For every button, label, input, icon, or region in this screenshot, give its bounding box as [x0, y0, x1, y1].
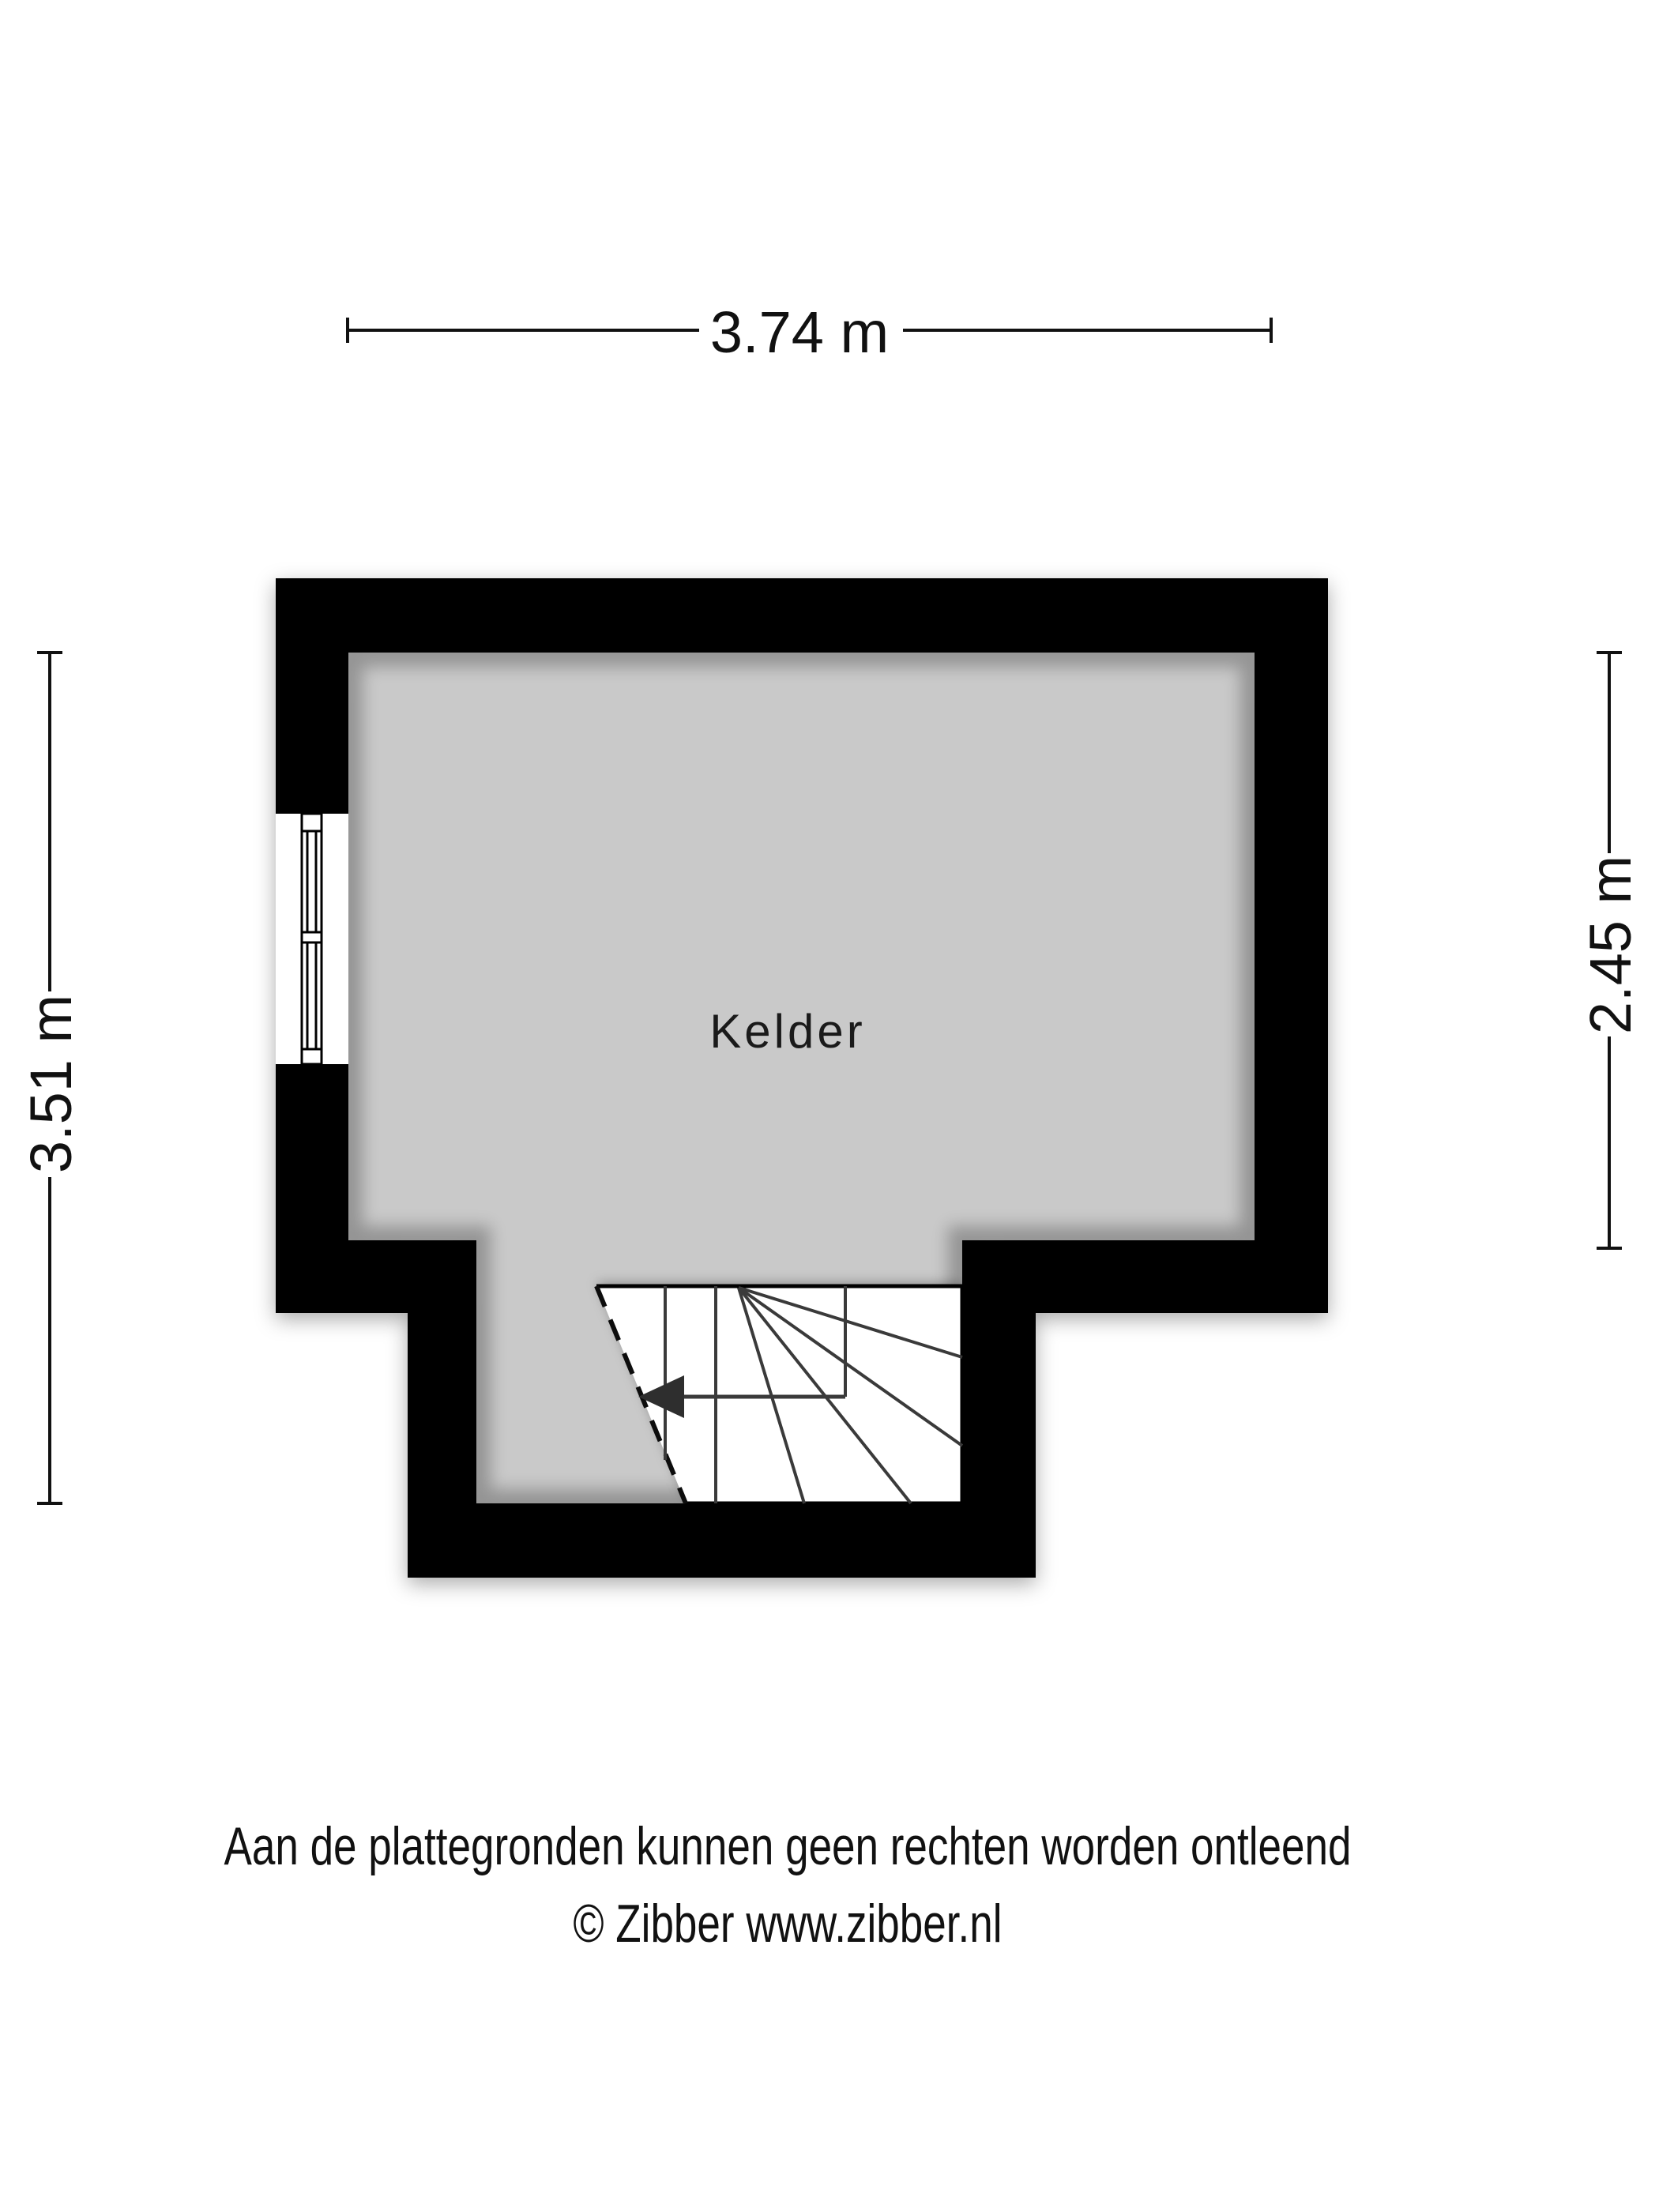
- footer: Aan de plattegronden kunnen geen rechten…: [224, 1816, 1351, 1954]
- floor-plan-page: Kelder 3.74 m 3.51 m 2.45 m Aan de platt…: [0, 0, 1659, 2212]
- footer-disclaimer: Aan de plattegronden kunnen geen rechten…: [224, 1816, 1351, 1876]
- floor-plan-svg: Kelder 3.74 m 3.51 m 2.45 m Aan de platt…: [0, 0, 1659, 2212]
- footer-copyright: © Zibber www.zibber.nl: [573, 1894, 1002, 1954]
- dimension-right-label: 2.45 m: [1578, 856, 1643, 1034]
- dimension-left-label: 3.51 m: [18, 995, 84, 1173]
- window-icon: [276, 814, 348, 1064]
- dimension-top-label: 3.74 m: [710, 299, 889, 365]
- room-label: Kelder: [709, 1005, 865, 1058]
